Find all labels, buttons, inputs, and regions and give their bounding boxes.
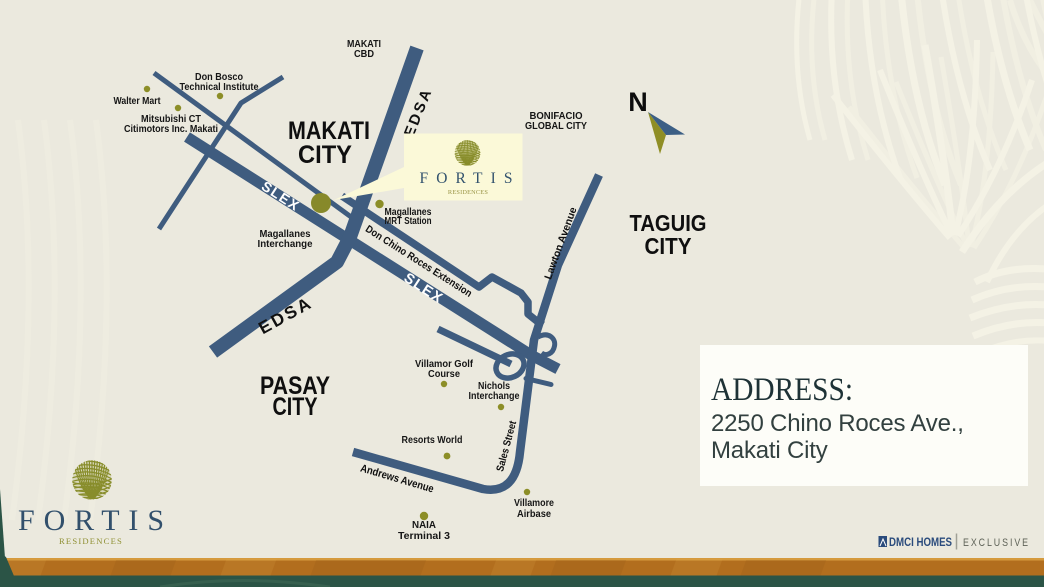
- svg-text:N: N: [628, 87, 648, 117]
- svg-text:NAIA: NAIA: [412, 520, 436, 531]
- svg-text:Course: Course: [428, 369, 460, 380]
- svg-text:GLOBAL CITY: GLOBAL CITY: [525, 121, 587, 132]
- svg-text:Resorts World: Resorts World: [402, 435, 463, 446]
- svg-text:RESIDENCES: RESIDENCES: [59, 536, 123, 546]
- svg-text:Airbase: Airbase: [517, 509, 551, 520]
- svg-text:Villamore: Villamore: [514, 498, 554, 509]
- svg-text:Terminal 3: Terminal 3: [398, 531, 450, 542]
- svg-text:Interchange: Interchange: [258, 239, 313, 250]
- svg-text:ADDRESS:: ADDRESS:: [711, 372, 853, 408]
- svg-text:MRT Station: MRT Station: [385, 216, 432, 227]
- svg-text:CITY: CITY: [273, 393, 318, 421]
- svg-text:CBD: CBD: [354, 49, 374, 60]
- svg-text:CITY: CITY: [645, 233, 692, 259]
- svg-text:DMCI HOMES: DMCI HOMES: [889, 537, 952, 549]
- svg-text:CITY: CITY: [298, 141, 352, 169]
- svg-text:Interchange: Interchange: [469, 391, 520, 402]
- svg-text:Walter Mart: Walter Mart: [114, 96, 162, 107]
- svg-text:EXCLUSIVE: EXCLUSIVE: [963, 537, 1030, 549]
- svg-text:Makati City: Makati City: [711, 437, 828, 464]
- svg-text:Citimotors Inc. Makati: Citimotors Inc. Makati: [124, 124, 218, 135]
- svg-text:2250 Chino Roces Ave.,: 2250 Chino Roces Ave.,: [711, 410, 964, 437]
- svg-text:Technical Institute: Technical Institute: [180, 82, 259, 93]
- svg-text:RESIDENCES: RESIDENCES: [448, 189, 488, 196]
